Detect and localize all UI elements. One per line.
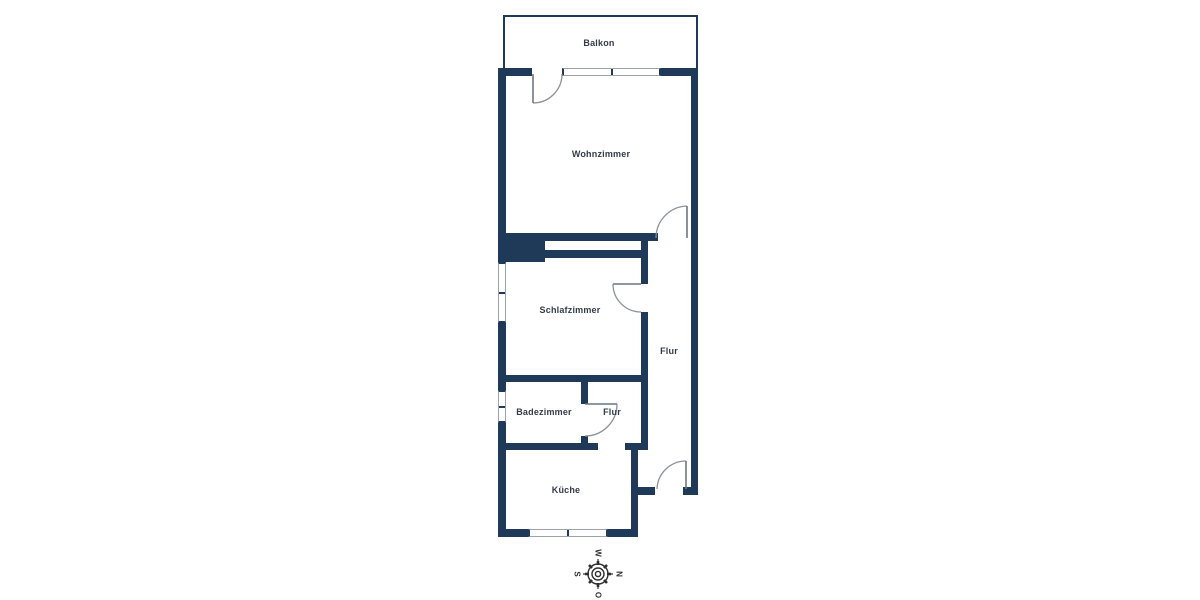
window-mullion	[499, 406, 505, 408]
compass-outer-ring	[588, 564, 608, 584]
wall-left-kitchen	[498, 423, 506, 537]
wall-kitchen-top	[498, 443, 598, 450]
wall-hall-upper	[641, 241, 648, 284]
compass-hub	[595, 571, 600, 576]
compass-spokes	[585, 561, 611, 587]
compass-rose: N O S W	[573, 549, 624, 598]
room-label-kueche: Küche	[552, 485, 581, 495]
compass-label-north: N	[615, 571, 624, 577]
plan-graphics-overlay: N O S W	[0, 0, 1200, 600]
compass-label-east: O	[594, 592, 603, 598]
wall-kitchen-bottom-left	[498, 529, 528, 537]
bedroom-door-swing	[613, 284, 641, 312]
wall-kitchen-top-right	[625, 443, 648, 450]
compass-label-south: S	[573, 571, 582, 577]
window-mullion	[499, 292, 505, 294]
compass-label-west: W	[594, 549, 603, 557]
room-label-schlafzimmer: Schlafzimmer	[540, 305, 601, 315]
window-bedroom	[498, 262, 506, 323]
window-mullion	[567, 530, 569, 536]
room-label-flur-klein: Flur	[603, 407, 621, 417]
wall-bottom-right-corner	[683, 487, 698, 495]
window-balcony	[562, 68, 661, 76]
room-label-balkon: Balkon	[583, 38, 614, 48]
livingroom-door-swing	[656, 206, 687, 238]
balcony-door-swing	[533, 74, 562, 103]
room-label-badezimmer: Badezimmer	[516, 407, 572, 417]
compass-inner-ring	[592, 568, 604, 580]
floor-plan: N O S W Balkon Wohnzimmer Schlafzimmer F…	[0, 0, 1200, 600]
wall-right-exterior	[691, 68, 698, 495]
entrance-door-swing	[657, 461, 686, 489]
room-label-flur: Flur	[660, 346, 678, 356]
wall-bedroom-bottom	[498, 375, 648, 382]
window-mullion	[611, 69, 613, 75]
window-bathroom	[498, 390, 506, 423]
wall-bath-divider-top	[581, 382, 588, 404]
wall-pillar-left	[498, 233, 545, 262]
wall-left-livingroom	[498, 68, 506, 233]
wall-bedroom-top	[543, 250, 648, 258]
wall-kitchen-bottom-right	[608, 529, 638, 537]
wall-entry-bottom	[631, 487, 655, 495]
window-kitchen	[528, 529, 608, 537]
room-label-wohnzimmer: Wohnzimmer	[572, 149, 630, 159]
compass-ticks	[583, 559, 613, 589]
